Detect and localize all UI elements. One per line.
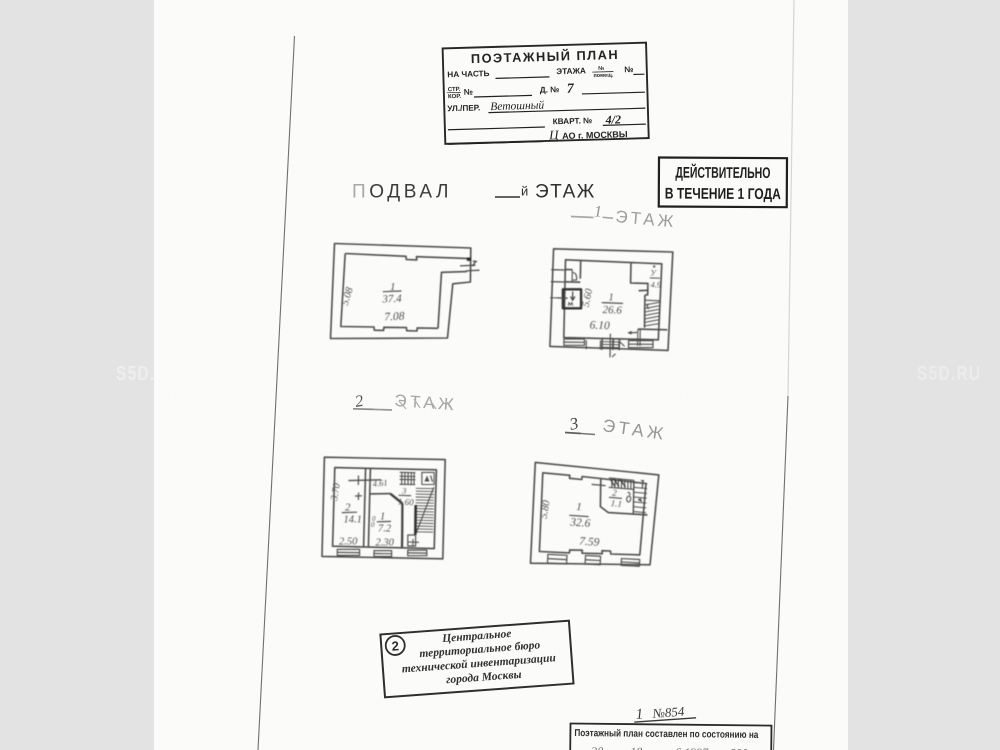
svg-text:7.08: 7.08 xyxy=(384,310,405,323)
svg-text:2.50: 2.50 xyxy=(339,537,358,548)
svg-text:2: 2 xyxy=(391,638,399,653)
svg-text:1: 1 xyxy=(635,707,644,723)
svg-text:37.4: 37.4 xyxy=(381,293,402,306)
svg-text:№: № xyxy=(598,66,604,72)
svg-text:32.6: 32.6 xyxy=(569,516,591,529)
svg-text:2: 2 xyxy=(345,502,351,514)
svg-text:№: № xyxy=(464,88,473,97)
svg-text:18: 18 xyxy=(630,745,642,750)
svg-text:ДЕЙСТВИТЕЛЬНО: ДЕЙСТВИТЕЛЬНО xyxy=(675,164,770,182)
svg-text:7.59: 7.59 xyxy=(579,536,600,549)
svg-text:Д. №: Д. № xyxy=(540,85,560,95)
svg-text:1.1: 1.1 xyxy=(610,498,622,509)
svg-text:Ц: Ц xyxy=(548,127,559,142)
svg-text:2.30: 2.30 xyxy=(376,538,395,549)
svg-text:1: 1 xyxy=(576,501,582,513)
svg-text:4.9: 4.9 xyxy=(651,280,662,290)
svg-text:3: 3 xyxy=(401,485,407,495)
svg-text:1: 1 xyxy=(380,512,385,523)
svg-text:1: 1 xyxy=(594,204,602,221)
svg-text:КВАРТ. №: КВАРТ. № xyxy=(553,116,593,126)
svg-text:26.6: 26.6 xyxy=(602,304,622,317)
svg-text:ПОДВАЛ: ПОДВАЛ xyxy=(352,182,452,203)
svg-text:1.60: 1.60 xyxy=(398,497,415,508)
svg-text:1: 1 xyxy=(609,293,614,304)
svg-text:ЭТАЖА: ЭТАЖА xyxy=(556,66,586,76)
svg-text:й: й xyxy=(521,184,528,199)
svg-text:6 1997: 6 1997 xyxy=(675,745,709,750)
svg-text:6.10: 6.10 xyxy=(589,320,610,333)
svg-text:УЛ./ПЕР.: УЛ./ПЕР. xyxy=(447,103,480,113)
svg-text:В ТЕЧЕНИЕ 1 ГОДА: В ТЕЧЕНИЕ 1 ГОДА xyxy=(665,186,781,204)
svg-text:НА ЧАСТЬ: НА ЧАСТЬ xyxy=(447,69,490,79)
svg-text:Поэтажный план составлен по со: Поэтажный план составлен по состоянию на xyxy=(574,728,758,741)
svg-text:ЭТАЖ: ЭТАЖ xyxy=(535,182,596,203)
svg-text:7.2: 7.2 xyxy=(378,524,392,535)
svg-text:№: № xyxy=(624,65,633,74)
svg-text:АО г. МОСКВЫ: АО г. МОСКВЫ xyxy=(562,129,628,141)
svg-text:14.1: 14.1 xyxy=(344,515,362,526)
svg-text:помещ.: помещ. xyxy=(593,73,614,80)
svg-text:« 30 »: « 30 » xyxy=(582,744,612,750)
svg-text:0: 0 xyxy=(371,521,375,529)
svg-text:4.61: 4.61 xyxy=(372,477,388,489)
svg-text:КОР.: КОР. xyxy=(448,94,462,100)
